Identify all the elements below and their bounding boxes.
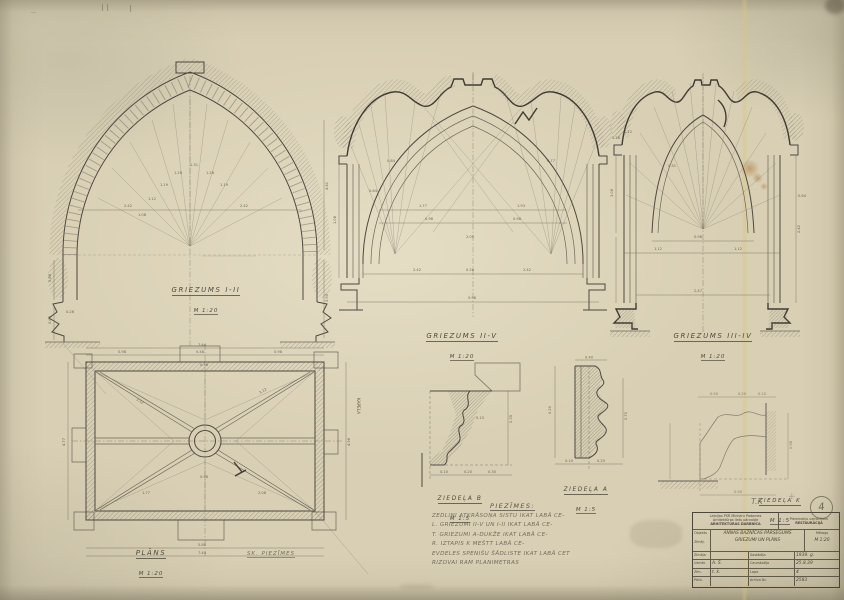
dim-label: 0.30 — [488, 470, 497, 474]
notes-line: ZEDLIŅI ATKRĀSOŅA SISTU IKAT LABĀ CE- — [432, 512, 618, 521]
profile-detail: 0.50 0.20 0.10 0.98 0.90 — [658, 392, 793, 495]
dim-label: 1.77 — [142, 491, 150, 495]
section-iii-iv-label: GRIEZUMS III-IV M 1:20 — [658, 323, 768, 362]
dim-label: 0.64 — [369, 189, 378, 193]
tb-cell: Lapa — [749, 569, 795, 576]
dim-label: 0.98 — [200, 475, 209, 479]
title-block-agency: Latvijas PSR Ministru Padomes Arhitektūr… — [693, 513, 779, 529]
dim-label: 3.08 — [610, 188, 614, 197]
notes-line: EVDELES SPENIŠU ŠĀDLISTE IKAT LABĀ CET — [432, 550, 618, 559]
profile-detail: 0.10 0.20 0.30 0.35 0.15 — [422, 363, 520, 487]
dim-label: 0.31 — [668, 164, 676, 168]
edge-tick — [130, 5, 131, 12]
dim-label: 2.42 — [523, 268, 531, 272]
notes-line: RIZOVAI RAM PLANIMETRAS — [432, 559, 618, 568]
tb-cell: 4 — [795, 569, 839, 576]
dim-label: 0.98 — [513, 217, 522, 221]
tb-cell: t. k. — [711, 569, 749, 576]
dim-label: 5.98 — [468, 296, 477, 300]
dimensions: 0.98 1.12 1.12 2.47 3.08 2.42 0.26 0.12 … — [610, 130, 807, 303]
corner-scribble: ~ — [30, 8, 37, 17]
notes-line: R. IZTAPIS K MEŠTT LABĀ CE- — [432, 540, 618, 549]
notes-line: T. GRIEZUMI A-DUKŽE IKAT LABĀ CE- — [432, 531, 618, 540]
section-i-ii-label: GRIEZUMS I-II M 1:20 — [158, 277, 254, 316]
dim-label: 0.84 — [387, 159, 396, 163]
section-ii-v-label: GRIEZUMS II-V M 1:20 — [410, 323, 514, 362]
dim-label: 0.20 — [738, 392, 747, 396]
dim-label: 1.19 — [160, 183, 169, 187]
registration-cross: + — [788, 492, 796, 502]
dim-label: 1.08 — [333, 215, 337, 224]
drawing-title: PLĀNS — [136, 549, 167, 559]
dim-label: 2.08 — [258, 491, 267, 495]
dim-label: 0.15 — [476, 416, 484, 420]
dim-label: 2.42 — [240, 204, 248, 208]
dept-line: RESTAURĀCIJA — [780, 521, 838, 525]
dim-label: 0.10 — [758, 392, 767, 396]
dim-label: 0.98 — [274, 350, 283, 354]
scale-label: Mērogs — [806, 531, 838, 535]
dim-label: 0.35 — [509, 415, 513, 423]
dim-label: 2.47 — [694, 289, 702, 293]
see-notes-annotation: SK. PIEZĪMES — [247, 551, 295, 558]
edge-tick — [107, 4, 108, 11]
dim-label: 3.12 — [135, 397, 144, 405]
plan-label: PLĀNS M 1:20 — [116, 540, 186, 579]
profile-detail: 0.40 0.10 0.25 0.70 0.20 — [548, 356, 628, 471]
drawing-title: GRIEZUMS I-II — [172, 286, 241, 296]
scale-value: M 1:20 — [806, 538, 838, 543]
dim-label: 0.98 — [694, 235, 703, 239]
tb-cell: Zīmēja — [693, 552, 711, 559]
title-block-object: ANNAS BAZNĪCAS PĀRSEGUMS GRIEZUMI UN PLĀ… — [711, 530, 805, 551]
content-value: GRIEZUMI UN PLĀNS — [712, 538, 803, 543]
drawing-title: GRIEZUMS II-V — [426, 332, 497, 342]
corner-shadow — [825, 0, 844, 14]
tb-cell: 2583 — [795, 577, 839, 585]
dim-label: 0.26 — [612, 136, 621, 140]
drawing-scale: M 1:20 — [450, 354, 475, 361]
tb-cell: 25.8.39 — [795, 560, 839, 567]
dim-label: 4.98 — [347, 437, 351, 446]
dim-label: 4.77 — [62, 438, 66, 446]
dim-label: 7.44 — [198, 551, 207, 555]
dim-label: 1.12 — [148, 197, 156, 201]
dim-label: 4.41 — [325, 182, 329, 190]
content-label: Zīmēj. — [694, 540, 709, 544]
title-block: Latvijas PSR Ministru Padomes Arhitektūr… — [692, 512, 840, 588]
dim-label: 0.98 — [425, 217, 434, 221]
drawing-title: GRIEZUMS III-IV — [674, 332, 753, 342]
dim-label: 0.25 — [597, 459, 605, 463]
tb-cell: Sastādīja — [749, 552, 795, 559]
drawing-section-iii-iv: 0.98 1.12 1.12 2.47 3.08 2.42 0.26 0.12 … — [610, 45, 810, 335]
dim-label: 1.77 — [419, 204, 427, 208]
tb-cell — [711, 552, 749, 559]
plan-vertical-note: KAPELA — [356, 398, 361, 414]
dim-label: 0.50 — [710, 392, 719, 396]
notes-line: L. GRIEZUMI II-V UN I-II IKAT LABĀ CE- — [432, 521, 618, 530]
dim-label: 0.90 — [734, 490, 743, 494]
dim-label: 1.31 — [190, 163, 198, 167]
dim-label: 0.10 — [440, 470, 449, 474]
dim-label: 0.26 — [66, 310, 75, 314]
dim-label: 0.26 — [466, 268, 475, 272]
smudge — [630, 520, 682, 548]
smudge — [400, 584, 434, 589]
dim-label: 0.64 — [48, 315, 52, 324]
initials-mark: T.K — [751, 497, 763, 506]
dim-label: 0.98 — [118, 350, 127, 354]
tb-cell: Pārb. — [693, 577, 711, 585]
drawing-plan: 0.98 5.48 0.98 7.44 5.80 7.44 4.77 4.98 … — [62, 342, 372, 577]
drawing-detail-b: 0.10 0.20 0.30 0.35 0.15 — [420, 363, 535, 488]
drawing-scale: M 1:20 — [701, 354, 726, 361]
drawing-scale: M 1:20 — [194, 308, 219, 315]
notes-title: PIEZĪMES: — [490, 502, 535, 511]
dim-label: 1.26 — [206, 171, 215, 175]
dim-label: 1.12 — [734, 247, 742, 251]
construction-rays — [351, 74, 595, 317]
dim-label: 0.98 — [789, 440, 793, 449]
object-value: ANNAS BAZNĪCAS PĀRSEGUMS — [712, 531, 803, 536]
dim-label: 5.80 — [198, 543, 207, 547]
tb-cell: Zīm. — [693, 569, 711, 576]
drawing-sheet: ~ — [0, 0, 844, 600]
dim-label: 1.08 — [138, 213, 147, 217]
drawing-detail-k: 0.50 0.20 0.10 0.98 0.90 — [658, 383, 798, 501]
dim-label: 0.70 — [624, 411, 628, 420]
drawing-scale: M 1:20 — [139, 571, 164, 578]
tb-cell: A. Š. — [711, 560, 749, 567]
notes-block: PIEZĪMES: ZEDLIŅI ATKRĀSOŅA SISTU IKAT L… — [432, 493, 618, 568]
dim-label: 2.42 — [124, 204, 132, 208]
dim-label: 2.42 — [797, 225, 801, 233]
title-block-scale: Mērogs M 1:20 — [805, 530, 839, 551]
dim-label: 5.48 — [196, 350, 205, 354]
tb-cell — [711, 577, 749, 585]
tb-cell: Arhīva Nr. — [749, 577, 795, 585]
dim-label: 0.20 — [548, 405, 552, 414]
dim-label: 0.88 — [48, 273, 52, 282]
dim-label: 0.12 — [624, 130, 632, 134]
title-block-object-labels: Objekts Zīmēj. — [693, 530, 711, 551]
dim-label: 0.20 — [464, 470, 473, 474]
dim-label: 1.26 — [174, 171, 183, 175]
dim-label: 2.05 — [466, 235, 474, 239]
dim-label: 3.95 — [325, 294, 329, 302]
dim-label: 0.10 — [565, 459, 574, 463]
drawing-section-ii-v: 1.77 1.93 0.98 0.98 2.42 2.42 5.98 0.26 … — [333, 62, 613, 320]
construction-rays — [626, 73, 780, 333]
agency-line: ARHITEKTŪRAS DARBNĪCA — [694, 522, 777, 526]
tb-cell: 1939. g. — [795, 552, 839, 559]
edge-tick — [102, 4, 103, 11]
dim-label: 2.42 — [413, 268, 421, 272]
dim-label: 1.12 — [654, 247, 662, 251]
dim-label: 1.93 — [517, 204, 525, 208]
tb-cell: Uzmēr. — [693, 560, 711, 567]
object-label: Objekts — [694, 531, 709, 535]
dim-label: 0.64 — [798, 194, 807, 198]
dim-label: 1.19 — [220, 183, 229, 187]
plan-note: SK. PIEZĪMES — [226, 540, 316, 559]
dim-label: 0.40 — [585, 356, 594, 360]
dim-label: 0.56 — [200, 363, 209, 367]
tb-cell: Caurskatīja — [749, 560, 795, 567]
drawing-detail-a: 0.40 0.10 0.25 0.70 0.20 — [545, 358, 637, 476]
dim-label: 7.44 — [198, 343, 207, 347]
dim-label: 0.77 — [547, 159, 555, 163]
dim-label: 3.12 — [258, 387, 267, 395]
